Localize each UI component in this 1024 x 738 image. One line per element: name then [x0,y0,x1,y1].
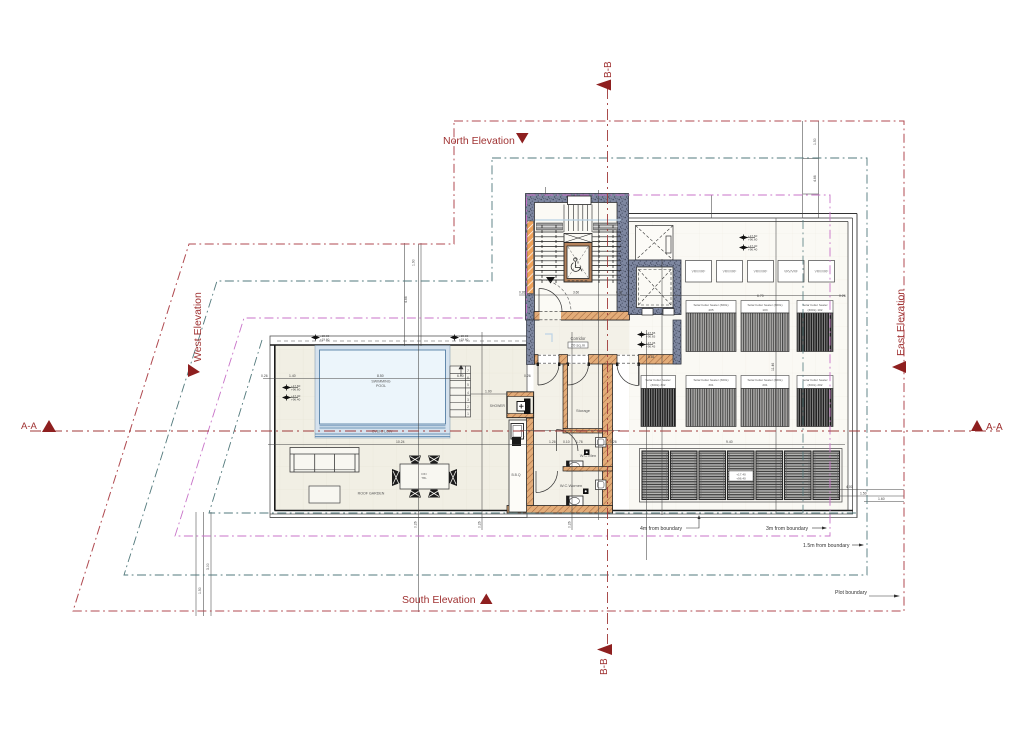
svg-text:0.26: 0.26 [616,291,622,295]
svg-text:3.60: 3.60 [573,291,579,295]
svg-text:Solar boiler heater: Solar boiler heater [802,378,827,382]
svg-text:W.C.Women: W.C.Women [560,483,582,488]
svg-text:5: 5 [467,383,469,387]
svg-text:+96.40: +96.40 [748,247,758,251]
svg-text:1.50: 1.50 [813,138,817,145]
svg-text:405: 405 [708,308,713,312]
svg-text:(300L) 102: (300L) 102 [808,308,823,312]
svg-text:0.26: 0.26 [414,521,418,528]
svg-text:Solar boiler heater (300L): Solar boiler heater (300L) [747,378,782,382]
svg-text:A-A: A-A [986,422,1003,433]
svg-text:6.70: 6.70 [757,294,764,298]
svg-text:9.40: 9.40 [726,440,733,444]
svg-text:Solar boiler heater: Solar boiler heater [645,378,670,382]
svg-text:SWIMMING: SWIMMING [371,380,390,384]
svg-text:201: 201 [762,383,767,387]
svg-text:B-B: B-B [603,61,614,78]
svg-text:B.B.Q: B.B.Q [511,473,520,477]
svg-text:0.26: 0.26 [478,521,482,528]
svg-text:Storage: Storage [576,408,591,413]
svg-text:1.76: 1.76 [576,440,583,444]
svg-text:1.50: 1.50 [860,492,867,496]
svg-text:+96.60: +96.60 [291,387,301,391]
svg-text:301: 301 [708,383,713,387]
svg-text:1.60: 1.60 [878,497,885,501]
svg-text:VRV/VRF: VRV/VRF [784,270,798,274]
svg-text:6: 6 [467,376,469,380]
svg-text:North Elevation: North Elevation [443,135,515,147]
svg-text:Corridor: Corridor [570,336,586,341]
svg-text:(300L) 202: (300L) 202 [808,383,823,387]
svg-text:2: 2 [467,405,469,409]
svg-text:TBL: TBL [421,476,427,480]
svg-text:0.26: 0.26 [519,291,525,295]
svg-text:West Elevation: West Elevation [192,292,204,362]
svg-text:4.66: 4.66 [404,296,408,303]
svg-text:1.90: 1.90 [412,259,416,266]
svg-text:VRV/VRF: VRV/VRF [815,270,829,274]
svg-text:VRV/VRF: VRV/VRF [692,270,706,274]
svg-text:3.00: 3.00 [206,563,210,570]
svg-text:East Elevation: East Elevation [895,289,907,356]
svg-text:Solar boiler heater: Solar boiler heater [802,303,827,307]
svg-text:A-A: A-A [21,421,38,432]
svg-text:1.00: 1.00 [485,390,492,394]
svg-text:VRV/VRF: VRV/VRF [754,270,768,274]
svg-text:10.24: 10.24 [396,440,405,444]
svg-text:1.5m from boundary: 1.5m from boundary [803,543,850,549]
svg-text:Solar boiler heater (300L): Solar boiler heater (300L) [747,303,782,307]
svg-text:+: + [523,434,525,438]
svg-text:4.66: 4.66 [813,175,817,182]
svg-text:B-B: B-B [599,658,610,675]
svg-text:1.26: 1.26 [549,440,556,444]
svg-text:Solar boiler heater (300L): Solar boiler heater (300L) [693,303,728,307]
svg-text:0.26: 0.26 [261,374,268,378]
svg-text:0.10: 0.10 [563,440,570,444]
svg-text:ROOF GARDEN: ROOF GARDEN [358,492,385,496]
svg-text:(300L) 302: (300L) 302 [651,383,666,387]
svg-text:+19.60: +19.60 [320,337,330,341]
svg-text:+96.65: +96.65 [646,334,656,338]
svg-text:3: 3 [467,398,469,402]
svg-text:1: 1 [467,412,469,416]
svg-text:0.26: 0.26 [610,440,617,444]
svg-text:+96.60: +96.60 [748,237,758,241]
svg-text:6.00: 6.00 [457,374,464,378]
svg-text:OVERFLOW: OVERFLOW [372,430,393,434]
svg-text:Plot boundary: Plot boundary [835,590,867,596]
svg-text:0.26: 0.26 [839,294,846,298]
svg-text:4.00: 4.00 [846,485,853,489]
svg-text:VRV/VRF: VRV/VRF [723,270,737,274]
svg-text:+96.40: +96.40 [291,397,301,401]
svg-text:5.81: 5.81 [648,355,655,359]
svg-text:4: 4 [467,391,469,395]
svg-text:Solar boiler heater (300L): Solar boiler heater (300L) [693,378,728,382]
svg-text:1.50: 1.50 [198,587,202,594]
svg-text:20 sq.m: 20 sq.m [571,343,586,348]
svg-text:7: 7 [467,369,469,373]
svg-text:11.46: 11.46 [771,363,775,371]
svg-text:South Elevation: South Elevation [402,594,476,606]
svg-text:8.50: 8.50 [377,374,384,378]
svg-text:3m from boundary: 3m from boundary [766,526,809,532]
svg-text:4m from boundary: 4m from boundary [640,526,683,532]
svg-text:+19.60: +19.60 [459,337,469,341]
svg-text:+96.40: +96.40 [736,477,746,481]
svg-text:103: 103 [762,308,767,312]
svg-text:0.26: 0.26 [524,374,531,378]
svg-text:POOL: POOL [376,384,386,388]
svg-text:1.40: 1.40 [289,374,296,378]
svg-text:SHOWER: SHOWER [490,404,506,408]
svg-text:0.26: 0.26 [568,521,572,528]
svg-text:+96.45: +96.45 [646,344,656,348]
